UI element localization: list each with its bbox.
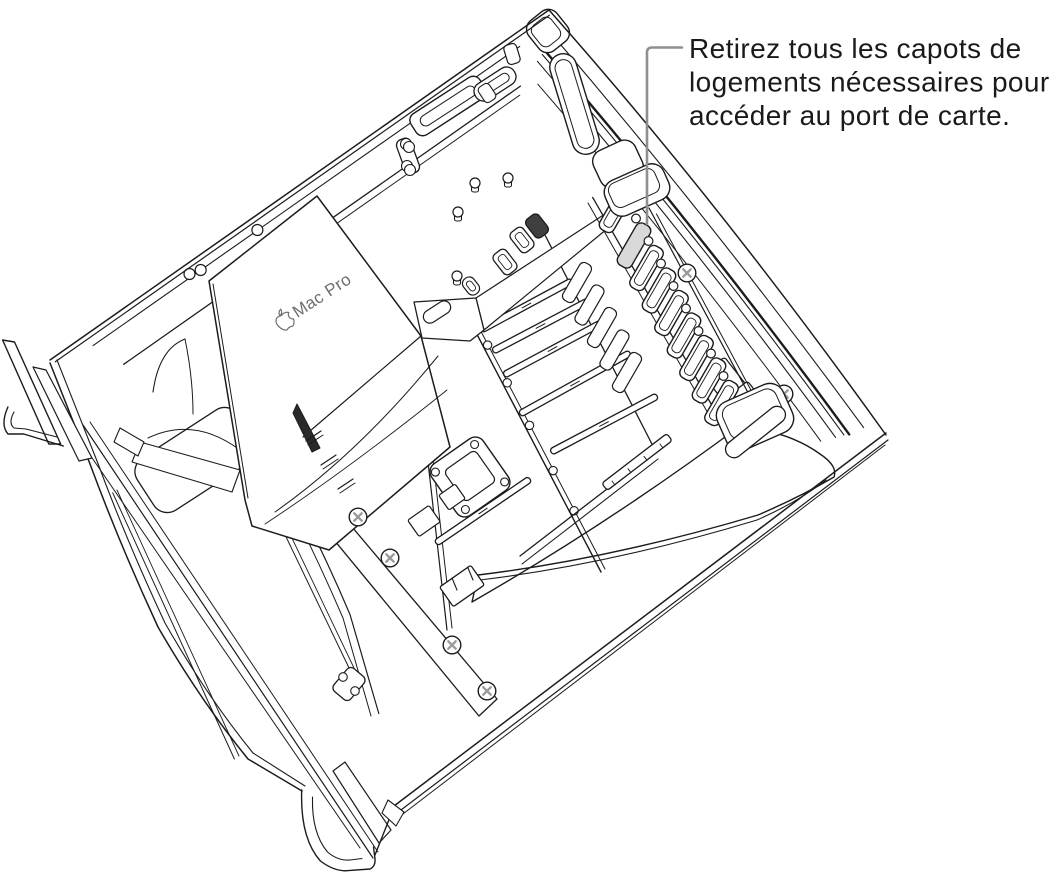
svg-text:accéder au port de carte.: accéder au port de carte. [689,100,1010,131]
svg-text:Retirez tous les capots de: Retirez tous les capots de [689,33,1022,64]
svg-text:logements nécessaires pour: logements nécessaires pour [689,67,1050,98]
